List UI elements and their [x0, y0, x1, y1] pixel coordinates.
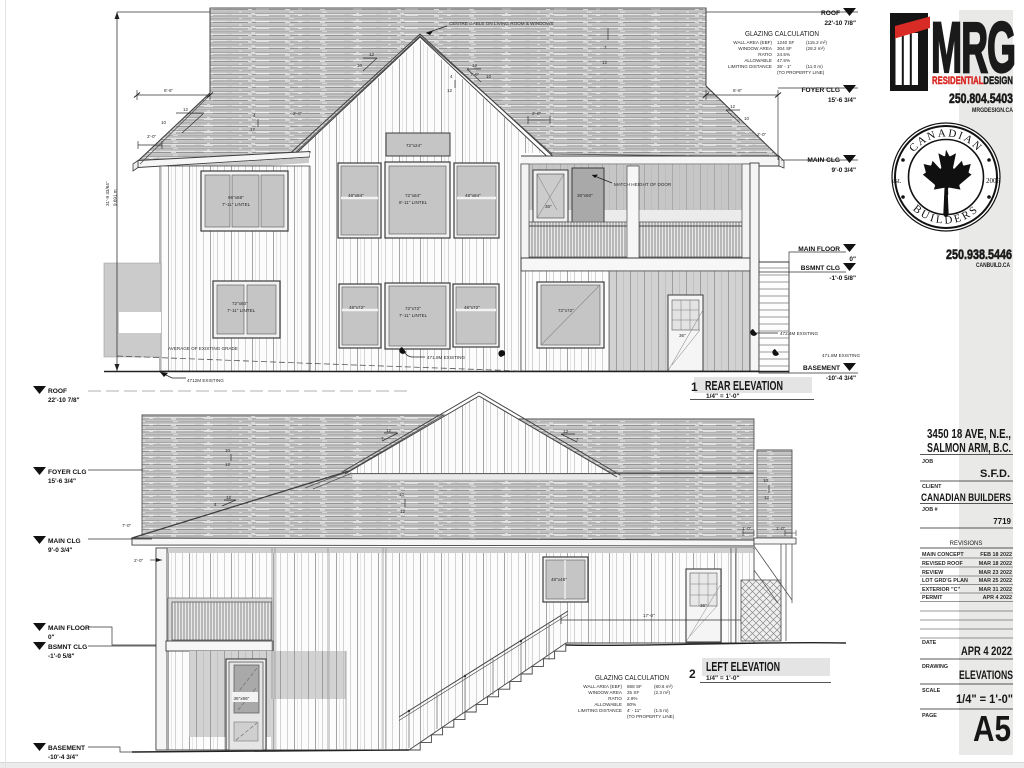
svg-text:0": 0": [849, 256, 856, 263]
svg-text:MAR 18 2022: MAR 18 2022: [979, 561, 1012, 567]
svg-text:15'-6 3/4": 15'-6 3/4": [48, 478, 76, 485]
svg-text:250.938.5446: 250.938.5446: [946, 246, 1012, 262]
svg-text:BASEMENT: BASEMENT: [48, 745, 85, 752]
svg-text:(1.5 m): (1.5 m): [654, 708, 669, 713]
svg-text:80%: 80%: [627, 702, 636, 707]
svg-text:10: 10: [161, 120, 167, 125]
svg-text:LIMITING DISTANCE: LIMITING DISTANCE: [578, 708, 622, 713]
svg-text:22'-10 7/8": 22'-10 7/8": [48, 397, 80, 404]
svg-text:10: 10: [225, 448, 231, 453]
svg-text:22'-10 7/8": 22'-10 7/8": [824, 20, 856, 27]
svg-text:ROOF: ROOF: [48, 388, 67, 395]
svg-text:1: 1: [691, 380, 698, 394]
svg-text:2'-0": 2'-0": [134, 558, 144, 563]
svg-text:FOYER CLG: FOYER CLG: [802, 87, 840, 94]
svg-text:12: 12: [226, 495, 232, 500]
svg-text:4712M EXISTING: 4712M EXISTING: [187, 378, 224, 383]
svg-text:CANADIAN BUILDERS: CANADIAN BUILDERS: [921, 492, 1011, 504]
svg-text:REVISED ROOF: REVISED ROOF: [922, 561, 963, 567]
svg-text:10: 10: [763, 478, 769, 483]
svg-text:4: 4: [214, 502, 217, 507]
svg-text:6'-6": 6'-6": [164, 88, 174, 93]
svg-text:BASEMENT: BASEMENT: [803, 365, 840, 372]
svg-text:7'-0": 7'-0": [122, 523, 132, 528]
svg-text:(28.2 m²): (28.2 m²): [806, 46, 825, 51]
svg-text:PAGE: PAGE: [922, 713, 937, 719]
svg-text:7: 7: [604, 45, 607, 50]
svg-text:25 SF: 25 SF: [627, 690, 639, 695]
svg-text:471.8M EXISTING: 471.8M EXISTING: [822, 353, 860, 358]
svg-text:APR 4 2022: APR 4 2022: [983, 595, 1012, 601]
svg-text:3450 18 AVE, N.E.,: 3450 18 AVE, N.E.,: [927, 427, 1011, 441]
svg-text:15'-6 3/4": 15'-6 3/4": [828, 97, 856, 104]
svg-text:12: 12: [369, 52, 375, 57]
svg-text:ELEVATIONS: ELEVATIONS: [959, 668, 1013, 682]
svg-text:ROOF: ROOF: [821, 10, 840, 17]
svg-text:ALLOWABLE: ALLOWABLE: [744, 58, 772, 63]
svg-text:10: 10: [744, 116, 750, 121]
svg-text:SALMON ARM, B.C.: SALMON ARM, B.C.: [927, 441, 1011, 455]
svg-text:31'-9 33/64": 31'-9 33/64": [105, 181, 110, 206]
svg-text:10: 10: [357, 63, 363, 68]
svg-text:GLAZING CALCULATION: GLAZING CALCULATION: [745, 29, 819, 38]
svg-text:10: 10: [486, 74, 492, 79]
svg-text:36' - 1": 36' - 1": [777, 64, 792, 69]
svg-text:2'-0": 2'-0": [757, 132, 767, 137]
svg-text:-10'-4 3/4": -10'-4 3/4": [826, 375, 856, 382]
svg-text:MRGDESIGN.CA: MRGDESIGN.CA: [972, 107, 1013, 114]
svg-text:REVIEW: REVIEW: [922, 570, 944, 576]
svg-text:36": 36": [545, 204, 552, 209]
svg-text:12: 12: [472, 63, 478, 68]
svg-text:12: 12: [447, 88, 453, 93]
svg-text:72"x60": 72"x60": [232, 301, 248, 306]
svg-text:EXTERIOR "C": EXTERIOR "C": [922, 587, 961, 593]
svg-text:ALLOWABLE: ALLOWABLE: [594, 702, 622, 707]
svg-text:1240 SF: 1240 SF: [777, 40, 795, 45]
svg-text:4: 4: [450, 74, 453, 79]
svg-text:36": 36": [700, 603, 707, 608]
svg-text:PERMIT: PERMIT: [922, 595, 943, 601]
svg-text:4' - 11": 4' - 11": [627, 708, 641, 713]
svg-text:2: 2: [689, 667, 696, 681]
svg-text:2'-0": 2'-0": [293, 111, 303, 116]
svg-text:250.804.5403: 250.804.5403: [949, 90, 1013, 106]
svg-text:2'-0": 2'-0": [532, 111, 542, 116]
svg-text:RATIO: RATIO: [758, 52, 772, 57]
svg-text:-10'-4 3/4": -10'-4 3/4": [48, 754, 78, 761]
svg-text:7'-11" LINTEL: 7'-11" LINTEL: [222, 202, 251, 207]
svg-text:48"x72": 48"x72": [464, 305, 480, 310]
svg-text:24.5%: 24.5%: [777, 52, 790, 57]
svg-text:36"x60": 36"x60": [577, 193, 593, 198]
svg-text:2.9%: 2.9%: [627, 696, 637, 701]
svg-text:12: 12: [764, 495, 770, 500]
svg-text:12: 12: [602, 60, 608, 65]
svg-text:48"x84": 48"x84": [465, 193, 481, 198]
svg-text:868 SF: 868 SF: [627, 684, 642, 689]
svg-text:48"x72": 48"x72": [349, 305, 365, 310]
svg-text:CENTRE GABLE ON LIVING ROOM &: CENTRE GABLE ON LIVING ROOM & WINDOWS: [449, 21, 553, 26]
svg-text:APR 4 2022: APR 4 2022: [961, 646, 1012, 658]
svg-text:12: 12: [386, 428, 392, 433]
svg-text:JOB #: JOB #: [922, 507, 938, 513]
svg-text:MAIN CONCEPT: MAIN CONCEPT: [922, 552, 964, 558]
svg-text:A5: A5: [973, 708, 1011, 749]
svg-text:MAR 31 2022: MAR 31 2022: [979, 587, 1012, 593]
svg-text:2006: 2006: [986, 177, 1001, 185]
svg-text:12: 12: [225, 462, 231, 467]
svg-text:S.F.D.: S.F.D.: [980, 468, 1010, 480]
svg-text:LOT GRD'G PLAN: LOT GRD'G PLAN: [922, 578, 968, 584]
svg-text:9'-0 3/4": 9'-0 3/4": [48, 547, 72, 554]
svg-text:REAR ELEVATION: REAR ELEVATION: [705, 378, 783, 393]
svg-text:(115.2 m²): (115.2 m²): [806, 40, 827, 45]
svg-text:1'-0": 1'-0": [742, 526, 752, 531]
svg-text:est.: est.: [892, 177, 902, 185]
svg-text:48"x84": 48"x84": [348, 193, 364, 198]
svg-text:6'-6": 6'-6": [733, 88, 743, 93]
svg-text:10: 10: [399, 492, 405, 497]
svg-text:(TO PROPERTY LINE): (TO PROPERTY LINE): [777, 70, 825, 75]
svg-text:72"x72": 72"x72": [558, 308, 574, 313]
svg-text:MAIN FLOOR: MAIN FLOOR: [798, 246, 840, 253]
svg-text:12: 12: [400, 509, 406, 514]
svg-text:(11.0 m): (11.0 m): [806, 64, 823, 69]
svg-text:1/4" = 1'-0": 1/4" = 1'-0": [706, 393, 740, 400]
svg-text:MAR 25 2022: MAR 25 2022: [979, 578, 1012, 584]
svg-text:(80.6 m²): (80.6 m²): [654, 684, 673, 689]
svg-text:12: 12: [250, 127, 256, 132]
svg-text:471.8M EXISTING: 471.8M EXISTING: [427, 355, 465, 360]
svg-text:12: 12: [183, 107, 189, 112]
svg-text:7'-0": 7'-0": [470, 72, 480, 77]
svg-text:REVISIONS: REVISIONS: [950, 541, 983, 547]
svg-text:0": 0": [48, 634, 55, 641]
svg-text:4: 4: [253, 113, 256, 118]
svg-text:36": 36": [679, 333, 686, 338]
svg-text:AVERAGE OF EXISTING GRADE: AVERAGE OF EXISTING GRADE: [168, 346, 238, 351]
svg-text:7'-11" LINTEL: 7'-11" LINTEL: [227, 308, 256, 313]
svg-text:JOB: JOB: [922, 459, 933, 465]
svg-text:12: 12: [563, 429, 569, 434]
svg-text:BSMNT CLG: BSMNT CLG: [48, 644, 87, 651]
svg-text:MAIN CLG: MAIN CLG: [807, 157, 840, 164]
svg-text:RATIO: RATIO: [608, 696, 622, 701]
svg-text:MAR 23 2022: MAR 23 2022: [979, 570, 1012, 576]
svg-text:17'-0": 17'-0": [643, 613, 655, 618]
svg-text:72"x84": 72"x84": [405, 193, 421, 198]
svg-text:WINDOW AREA: WINDOW AREA: [738, 46, 773, 51]
svg-text:MAIN FLOOR: MAIN FLOOR: [48, 625, 90, 632]
svg-text:WALL AREA (EBF): WALL AREA (EBF): [583, 684, 622, 689]
svg-text:(2.3 m²): (2.3 m²): [654, 690, 671, 695]
svg-text:47.5%: 47.5%: [777, 58, 790, 63]
svg-text:9.691 m: 9.691 m: [113, 189, 118, 206]
svg-text:1/4" = 1'-0": 1/4" = 1'-0": [956, 692, 1013, 706]
svg-text:7: 7: [576, 437, 579, 442]
svg-text:8'-11" LINTEL: 8'-11" LINTEL: [399, 200, 428, 205]
svg-text:-1'-0 5/8": -1'-0 5/8": [48, 653, 75, 660]
svg-text:RESIDENTIALDESIGN: RESIDENTIALDESIGN: [932, 75, 1013, 87]
svg-text:304 SF: 304 SF: [777, 46, 792, 51]
svg-text:MAIN CLG: MAIN CLG: [48, 538, 81, 545]
svg-text:FEB 18 2022: FEB 18 2022: [980, 552, 1012, 558]
svg-text:SCALE: SCALE: [922, 688, 941, 694]
svg-text:9'-0 3/4": 9'-0 3/4": [832, 167, 856, 174]
svg-text:BSMNT CLG: BSMNT CLG: [801, 265, 840, 272]
svg-text:LEFT ELEVATION: LEFT ELEVATION: [706, 659, 780, 674]
svg-text:7719: 7719: [993, 517, 1011, 526]
svg-text:7'-11" LINTEL: 7'-11" LINTEL: [399, 313, 428, 318]
svg-text:FOYER CLG: FOYER CLG: [48, 469, 86, 476]
svg-text:MATCH HEIGHT OF DOOR: MATCH HEIGHT OF DOOR: [614, 182, 672, 187]
svg-text:WALL AREA (EBF): WALL AREA (EBF): [733, 40, 772, 45]
svg-text:CANBUILD.CA: CANBUILD.CA: [976, 262, 1010, 269]
svg-text:-1'-0 5/8": -1'-0 5/8": [829, 275, 856, 282]
svg-text:72"x72": 72"x72": [405, 306, 421, 311]
svg-text:36"x96": 36"x96": [234, 696, 250, 701]
svg-text:(TO PROPERTY LINE): (TO PROPERTY LINE): [627, 714, 675, 719]
svg-text:WINDOW AREA: WINDOW AREA: [588, 690, 623, 695]
svg-text:72"x24": 72"x24": [406, 143, 422, 148]
svg-text:1'-0": 1'-0": [776, 526, 786, 531]
svg-text:96"x66": 96"x66": [228, 195, 244, 200]
svg-text:472.4M EXISTING: 472.4M EXISTING: [780, 331, 818, 336]
svg-text:CLIENT: CLIENT: [922, 484, 942, 490]
svg-text:48"x48": 48"x48": [551, 577, 567, 582]
svg-text:DRAWING: DRAWING: [922, 664, 948, 670]
svg-text:DATE: DATE: [922, 640, 937, 646]
svg-text:12: 12: [730, 104, 736, 109]
svg-text:1/4" = 1'-0": 1/4" = 1'-0": [706, 675, 740, 682]
svg-text:2'-0": 2'-0": [147, 134, 157, 139]
svg-text:LIMITING DISTANCE: LIMITING DISTANCE: [728, 64, 772, 69]
svg-text:GLAZING CALCULATION: GLAZING CALCULATION: [595, 673, 669, 682]
